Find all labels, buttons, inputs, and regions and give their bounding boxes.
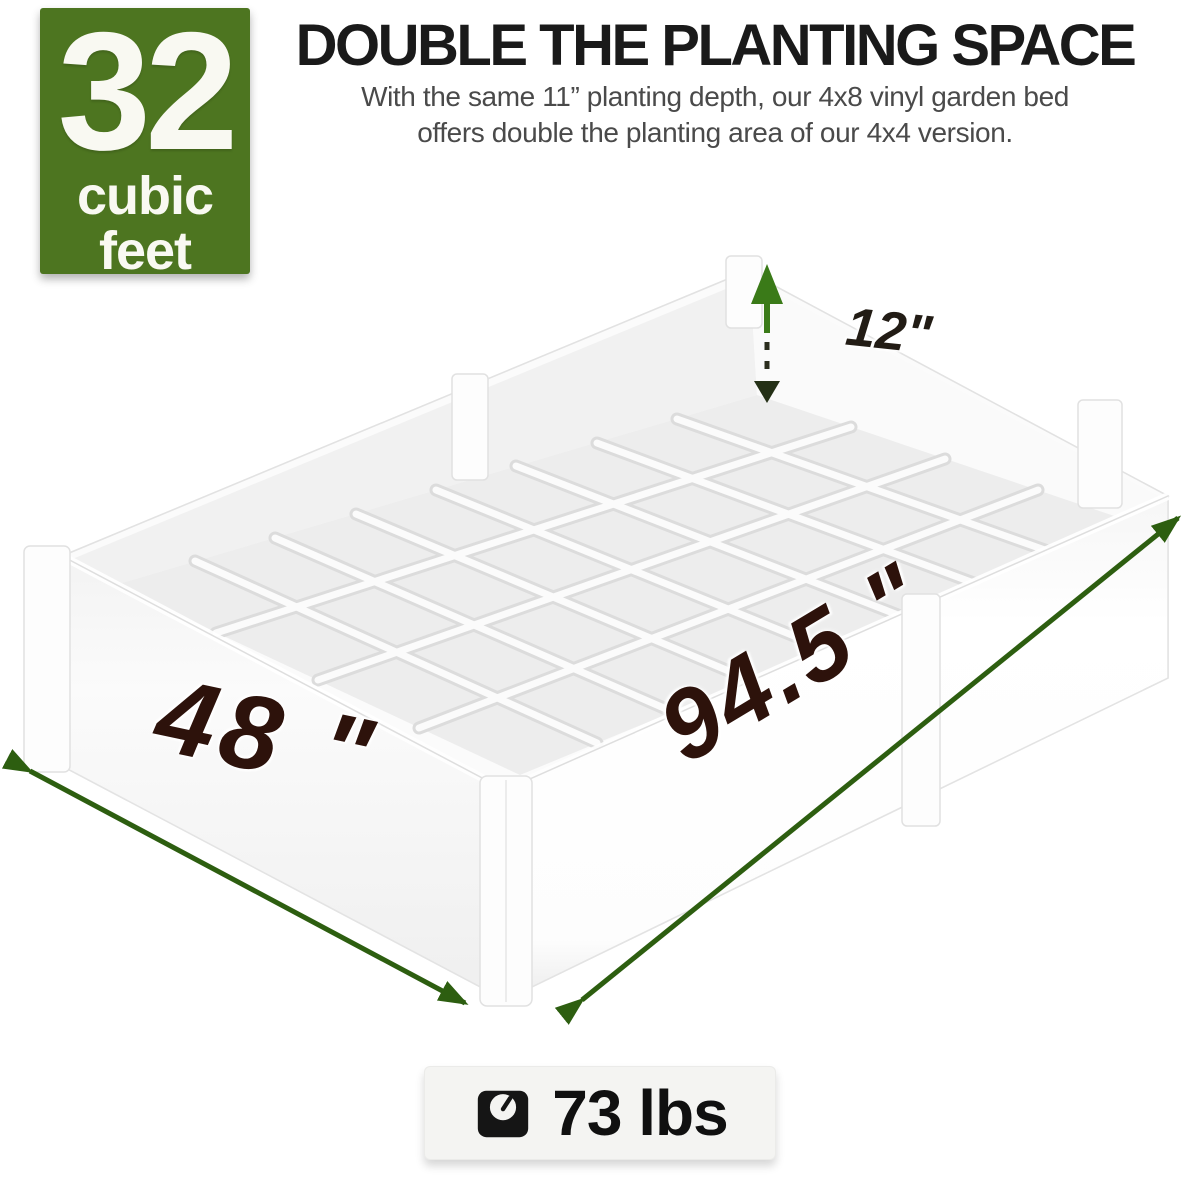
- weight-value: 73 lbs: [552, 1076, 727, 1150]
- weight-scale-icon: [472, 1082, 534, 1144]
- garden-bed-illustration: [0, 0, 1200, 1200]
- weight-badge: 73 lbs: [424, 1066, 776, 1160]
- product-infographic: 32 cubic feet DOUBLE THE PLANTING SPACE …: [0, 0, 1200, 1200]
- bed-body: [24, 256, 1168, 1006]
- depth-dimension-label: 12": [843, 296, 935, 367]
